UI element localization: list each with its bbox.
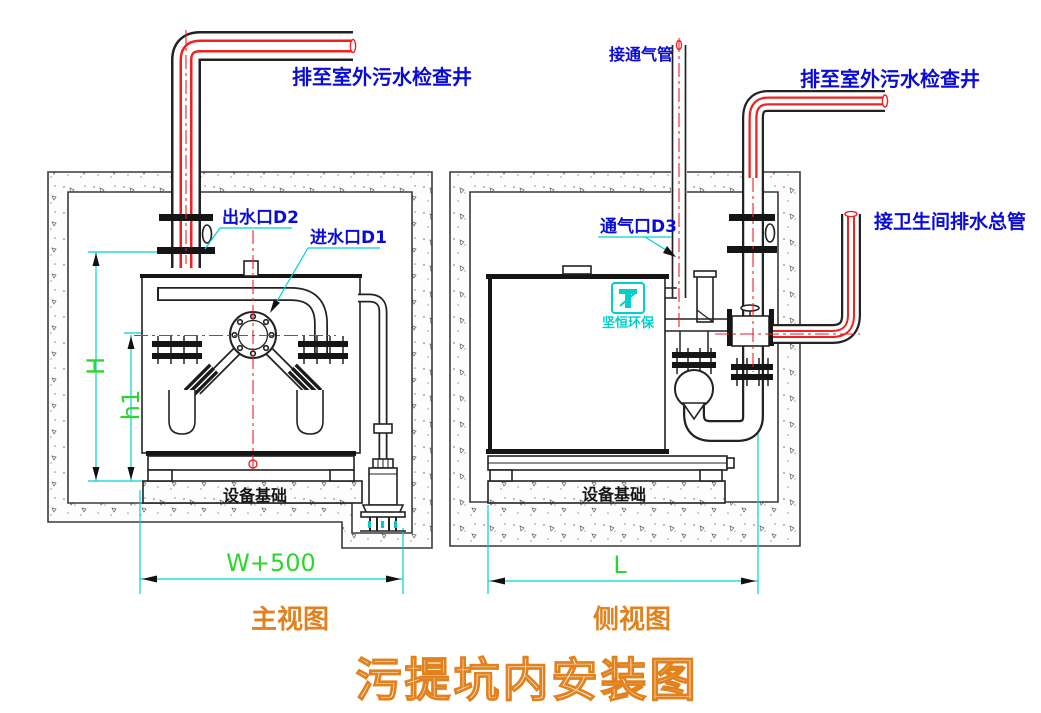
drawing-title: 污提坑内安装图 bbox=[356, 653, 699, 707]
dim-width-label: W+500 bbox=[226, 549, 316, 577]
side-view-caption: 侧视图 bbox=[593, 605, 671, 635]
side-vent-connect-label: 接通气管 bbox=[609, 45, 673, 64]
installation-drawing: 坚恒环保 bbox=[0, 0, 1041, 713]
front-outlet-label: 出水口D2 bbox=[222, 207, 299, 228]
side-discharge-label: 排至室外污水检查井 bbox=[800, 67, 980, 91]
side-vent-pipe bbox=[665, 41, 687, 299]
front-outlet-leader bbox=[205, 228, 292, 249]
front-foundation-label: 设备基础 bbox=[223, 486, 287, 505]
brand-logo-text: 坚恒环保 bbox=[602, 315, 655, 331]
front-inlet-label: 进水口D1 bbox=[310, 227, 387, 248]
front-drain-pump bbox=[358, 298, 406, 531]
side-toilet-main-label: 接卫生间排水总管 bbox=[874, 210, 1026, 233]
side-foundation-label: 设备基础 bbox=[582, 485, 646, 504]
dim-H-label: H bbox=[82, 357, 110, 375]
front-discharge-label: 排至室外污水检查井 bbox=[292, 65, 472, 89]
dim-length-label: L bbox=[613, 551, 627, 579]
dim-h1-label: h1 bbox=[117, 390, 145, 420]
side-vent-port-label: 通气口D3 bbox=[600, 216, 677, 237]
side-vent-leader bbox=[598, 237, 676, 257]
drawing-canvas: 坚恒环保 bbox=[0, 0, 1041, 713]
front-view-caption: 主视图 bbox=[251, 605, 329, 635]
